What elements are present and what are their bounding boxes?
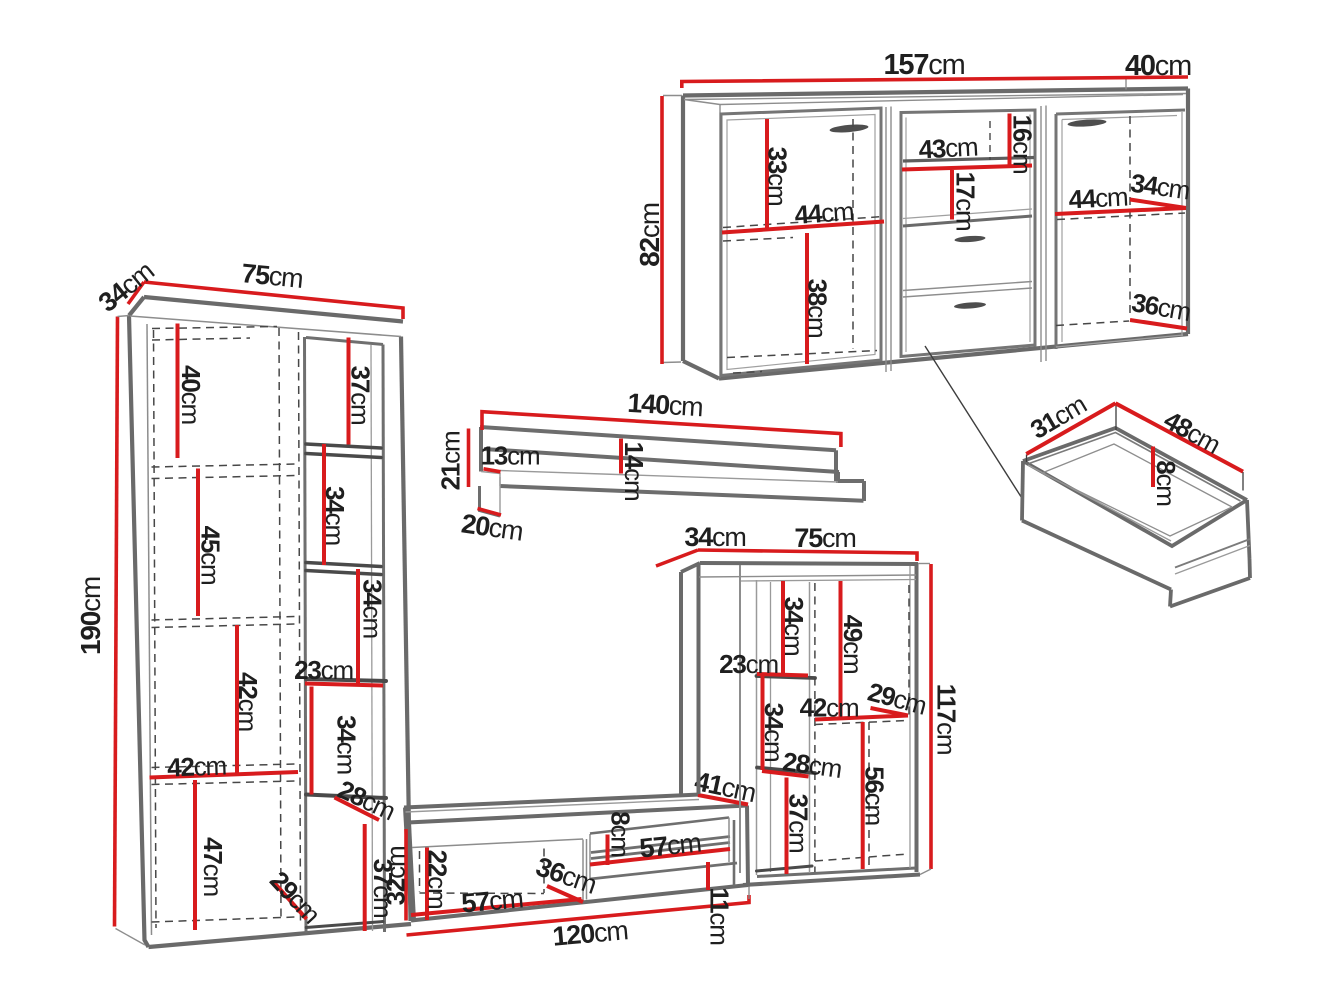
svg-text:37cm: 37cm xyxy=(784,794,814,853)
svg-text:23cm: 23cm xyxy=(294,655,353,685)
svg-text:40cm: 40cm xyxy=(1125,50,1191,82)
svg-text:56cm: 56cm xyxy=(860,766,890,825)
svg-text:45cm: 45cm xyxy=(196,526,226,585)
svg-text:44cm: 44cm xyxy=(1068,181,1128,214)
svg-text:40cm: 40cm xyxy=(176,365,206,424)
svg-text:16cm: 16cm xyxy=(1008,115,1038,174)
svg-text:13cm: 13cm xyxy=(481,441,540,471)
svg-text:44cm: 44cm xyxy=(794,196,855,230)
svg-text:34cm: 34cm xyxy=(684,522,745,552)
svg-text:140cm: 140cm xyxy=(627,388,704,423)
svg-text:43cm: 43cm xyxy=(918,131,978,164)
svg-text:42cm: 42cm xyxy=(800,693,859,723)
svg-text:22cm: 22cm xyxy=(423,850,453,909)
svg-text:34cm: 34cm xyxy=(779,597,809,656)
svg-text:21cm: 21cm xyxy=(436,432,466,491)
svg-text:32cm: 32cm xyxy=(381,847,411,906)
svg-text:49cm: 49cm xyxy=(838,615,868,674)
svg-text:57cm: 57cm xyxy=(460,883,524,918)
svg-text:17cm: 17cm xyxy=(951,172,981,231)
svg-text:190cm: 190cm xyxy=(75,577,106,655)
svg-text:42cm: 42cm xyxy=(233,672,263,731)
svg-text:8cm: 8cm xyxy=(1151,460,1181,506)
svg-text:8cm: 8cm xyxy=(606,811,636,857)
svg-text:75cm: 75cm xyxy=(240,258,304,294)
svg-text:23cm: 23cm xyxy=(719,649,778,679)
svg-text:57cm: 57cm xyxy=(638,827,702,863)
svg-text:117cm: 117cm xyxy=(932,684,962,755)
svg-text:42cm: 42cm xyxy=(167,750,227,782)
svg-text:34cm: 34cm xyxy=(332,715,362,774)
svg-text:38cm: 38cm xyxy=(803,279,833,338)
svg-text:34cm: 34cm xyxy=(358,579,388,638)
svg-text:47cm: 47cm xyxy=(198,837,228,896)
svg-text:37cm: 37cm xyxy=(346,366,376,425)
svg-text:82cm: 82cm xyxy=(634,203,665,267)
svg-text:14cm: 14cm xyxy=(619,442,649,501)
svg-text:34cm: 34cm xyxy=(320,486,350,545)
svg-text:157cm: 157cm xyxy=(883,49,964,81)
svg-text:33cm: 33cm xyxy=(763,147,793,206)
svg-text:11cm: 11cm xyxy=(705,887,735,944)
svg-text:75cm: 75cm xyxy=(794,523,855,553)
